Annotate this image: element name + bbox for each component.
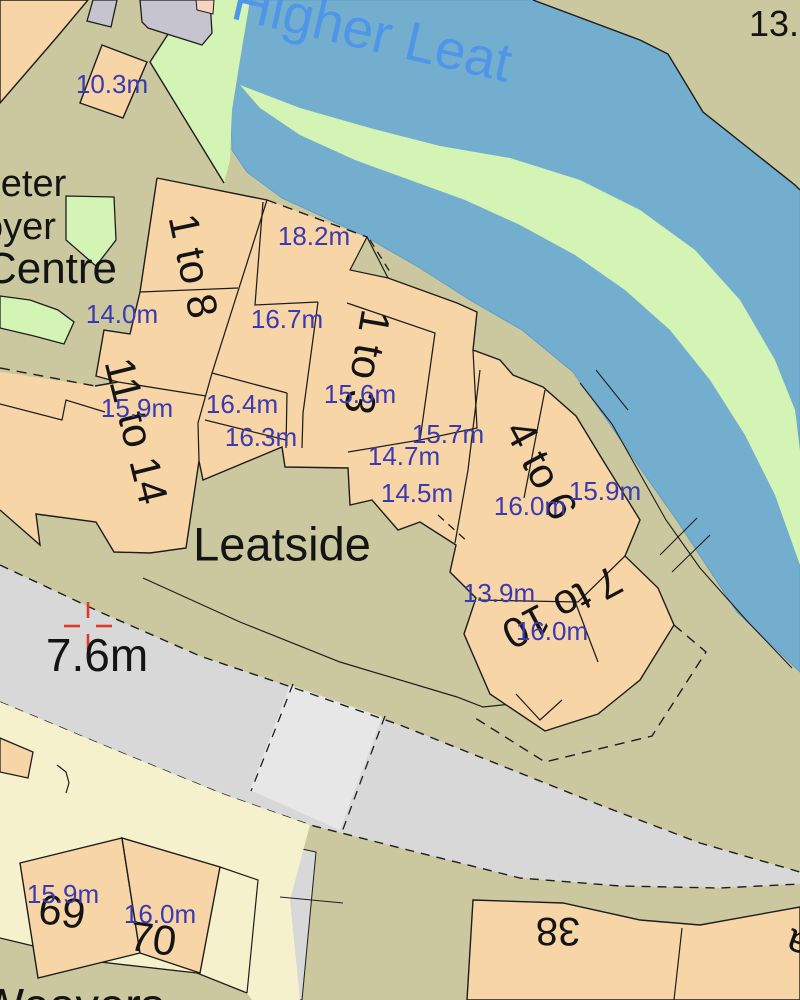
building-69	[20, 838, 140, 978]
map-base-layer	[0, 0, 800, 1000]
map-canvas[interactable]: Higher Leat13.xeteroyerCentreLeatside7.6…	[0, 0, 800, 1000]
